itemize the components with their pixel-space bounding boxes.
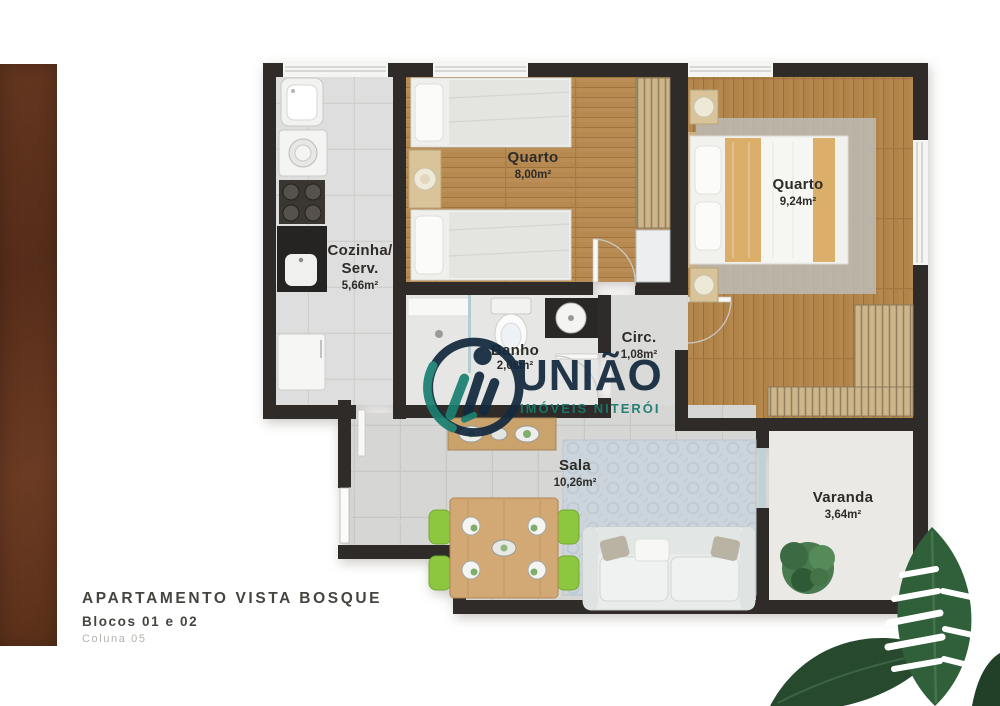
- shower-drain: [435, 330, 443, 338]
- room-label-circ: Circ.: [622, 329, 657, 346]
- dresser-quarto1: [636, 230, 670, 282]
- room-label-cozinha-line1: Cozinha/: [328, 242, 393, 259]
- room-area-sala: 10,26m²: [554, 477, 597, 489]
- vanity-sink: [545, 298, 598, 338]
- nightstand-lamp-top: [690, 90, 718, 124]
- wardrobe-quarto1: [636, 78, 670, 228]
- varanda-glass-door: [759, 448, 766, 508]
- window-quarto1: [433, 63, 528, 77]
- sofa: [583, 527, 755, 610]
- room-label-sala: Sala: [559, 457, 591, 474]
- dining-table: [450, 498, 558, 598]
- room-area-circ: 1,08m²: [621, 349, 658, 361]
- title-block: APARTAMENTO VISTA BOSQUE Blocos 01 e 02 …: [82, 590, 382, 645]
- nightstand-lamp: [409, 150, 441, 208]
- room-area-cozinha: 5,66m²: [342, 280, 379, 292]
- single-bed-1: [411, 78, 571, 147]
- cozinha-furniture: [277, 78, 327, 390]
- single-bed-2: [411, 210, 571, 280]
- room-label-banho: Banho: [491, 342, 539, 359]
- double-bed: [688, 132, 848, 268]
- shower-glass: [468, 295, 471, 373]
- stove: [279, 180, 325, 224]
- apartment-title: APARTAMENTO VISTA BOSQUE: [82, 590, 382, 608]
- room-area-banho: 2,08m²: [497, 360, 534, 372]
- column-label: Coluna 05: [82, 633, 382, 645]
- room-area-quarto1: 8,00m²: [515, 169, 552, 181]
- refrigerator: [278, 334, 325, 390]
- monstera-leaves-illustration: [770, 471, 1000, 706]
- wood-panel-decor: [0, 64, 57, 646]
- sideboard: [448, 418, 556, 450]
- room-label-quarto2: Quarto: [773, 176, 824, 193]
- washing-machine: [279, 130, 327, 176]
- window-quarto2-right: [913, 140, 928, 265]
- sala-furniture: [429, 418, 756, 610]
- blocks-label: Blocos 01 e 02: [82, 614, 382, 629]
- room-label-quarto1: Quarto: [508, 149, 559, 166]
- page-canvas: Cozinha/ Serv. 5,66m² Quarto 8,00m² Quar…: [0, 0, 1000, 706]
- wardrobe-quarto2-bottom: [768, 387, 913, 416]
- laundry-tub: [281, 78, 323, 126]
- room-area-quarto2: 9,24m²: [780, 196, 817, 208]
- nightstand-lamp-bottom: [690, 268, 718, 302]
- counter-sink: [277, 226, 327, 292]
- window-circ-top: [688, 63, 773, 77]
- shower-bench: [408, 298, 470, 316]
- window-cozinha: [283, 63, 388, 77]
- leaf-corner: [972, 653, 1000, 706]
- door-cozinha: [358, 410, 365, 456]
- room-label-cozinha-line2: Serv.: [341, 260, 378, 277]
